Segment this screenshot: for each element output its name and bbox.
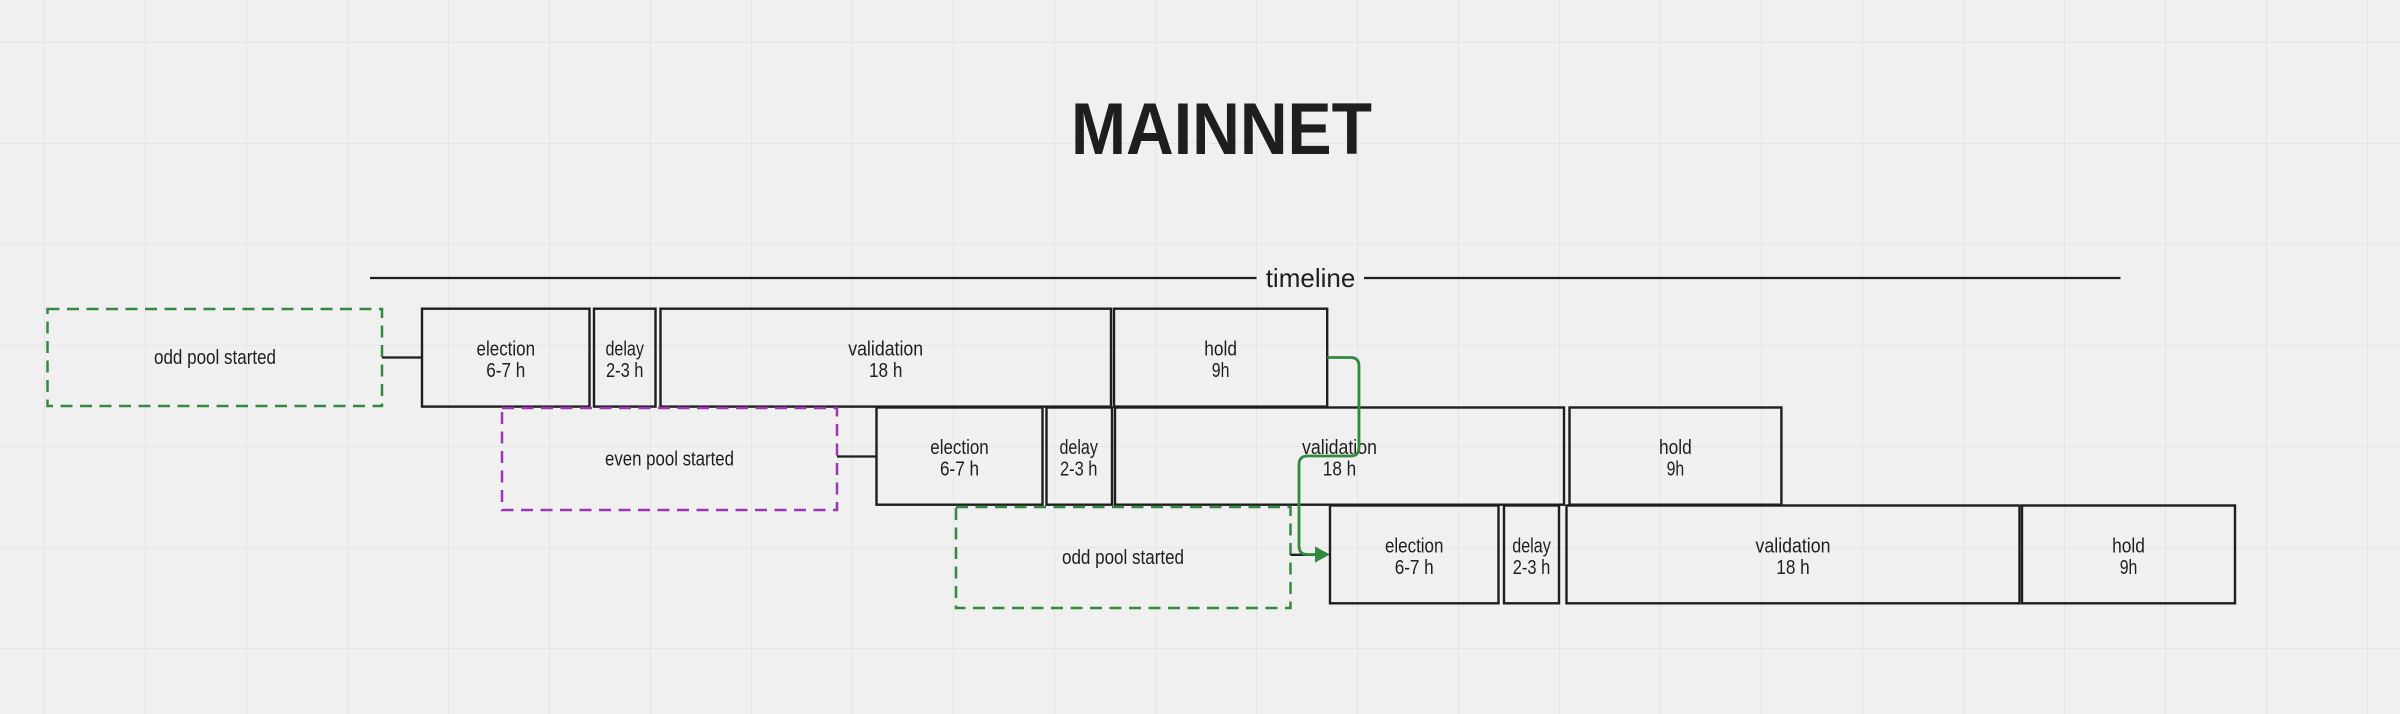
svg-text:18 h: 18 h xyxy=(869,360,902,382)
svg-text:6-7 h: 6-7 h xyxy=(486,360,525,382)
svg-text:election: election xyxy=(477,339,536,361)
svg-text:hold: hold xyxy=(2112,535,2145,557)
svg-text:18 h: 18 h xyxy=(1776,557,1809,579)
svg-text:election: election xyxy=(930,437,989,459)
svg-text:delay: delay xyxy=(605,339,644,361)
svg-text:election: election xyxy=(1385,535,1444,557)
svg-text:hold: hold xyxy=(1659,437,1692,459)
svg-text:MAINNET: MAINNET xyxy=(1071,89,1372,170)
svg-text:9h: 9h xyxy=(1667,459,1685,481)
svg-text:2-3 h: 2-3 h xyxy=(606,360,644,382)
svg-text:delay: delay xyxy=(1059,437,1098,459)
svg-text:even pool started: even pool started xyxy=(605,449,734,471)
svg-text:validation: validation xyxy=(1756,535,1831,557)
svg-text:6-7 h: 6-7 h xyxy=(1395,557,1434,579)
svg-text:6-7 h: 6-7 h xyxy=(940,459,979,481)
svg-text:2-3 h: 2-3 h xyxy=(1060,459,1098,481)
svg-text:odd pool started: odd pool started xyxy=(1062,547,1184,569)
svg-text:9h: 9h xyxy=(1212,360,1230,382)
svg-text:validation: validation xyxy=(848,339,923,361)
svg-text:delay: delay xyxy=(1512,535,1551,557)
svg-text:2-3 h: 2-3 h xyxy=(1513,557,1551,579)
svg-text:timeline: timeline xyxy=(1266,263,1356,293)
svg-text:18 h: 18 h xyxy=(1323,459,1356,481)
svg-text:hold: hold xyxy=(1204,339,1237,361)
svg-text:odd pool started: odd pool started xyxy=(154,347,276,369)
svg-text:9h: 9h xyxy=(2120,557,2138,579)
